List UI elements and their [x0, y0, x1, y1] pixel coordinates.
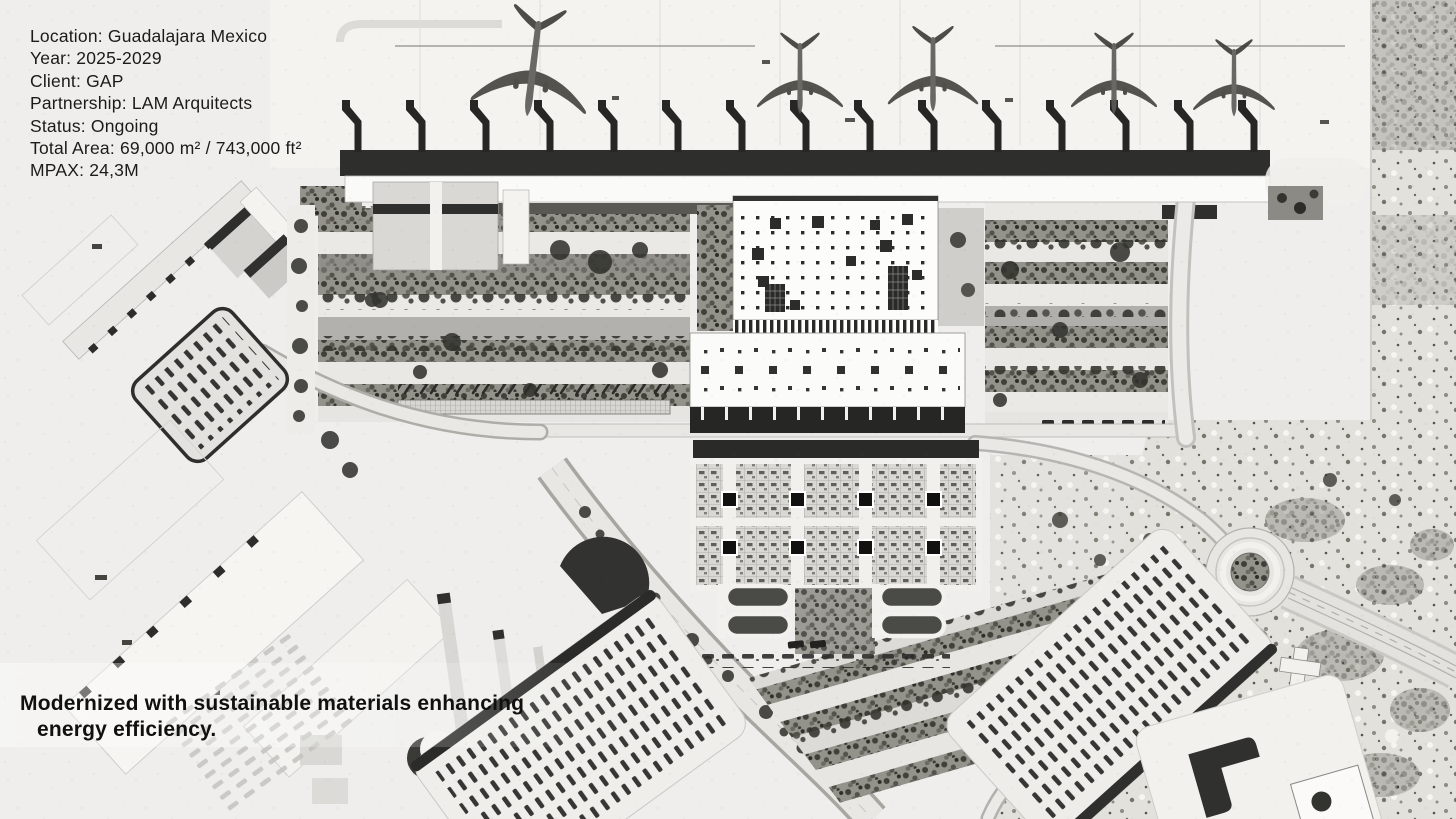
project-info-line-status: Status: Ongoing — [30, 115, 302, 137]
caption-line-2: energy efficiency. — [37, 717, 524, 743]
presentation-slide: Location: Guadalajara Mexico Year: 2025-… — [0, 0, 1456, 819]
project-info-line-total-area: Total Area: 69,000 m² / 743,000 ft² — [30, 137, 302, 159]
caption-text: Modernized with sustainable materials en… — [20, 691, 524, 743]
project-info-line-year: Year: 2025-2029 — [30, 47, 302, 69]
project-info-panel: Location: Guadalajara Mexico Year: 2025-… — [30, 25, 302, 182]
caption-line-1: Modernized with sustainable materials en… — [20, 691, 524, 717]
project-info-line-client: Client: GAP — [30, 70, 302, 92]
project-info-line-mpax: MPAX: 24,3M — [30, 159, 302, 181]
project-info-line-location: Location: Guadalajara Mexico — [30, 25, 302, 47]
project-info-line-partnership: Partnership: LAM Arquitects — [30, 92, 302, 114]
